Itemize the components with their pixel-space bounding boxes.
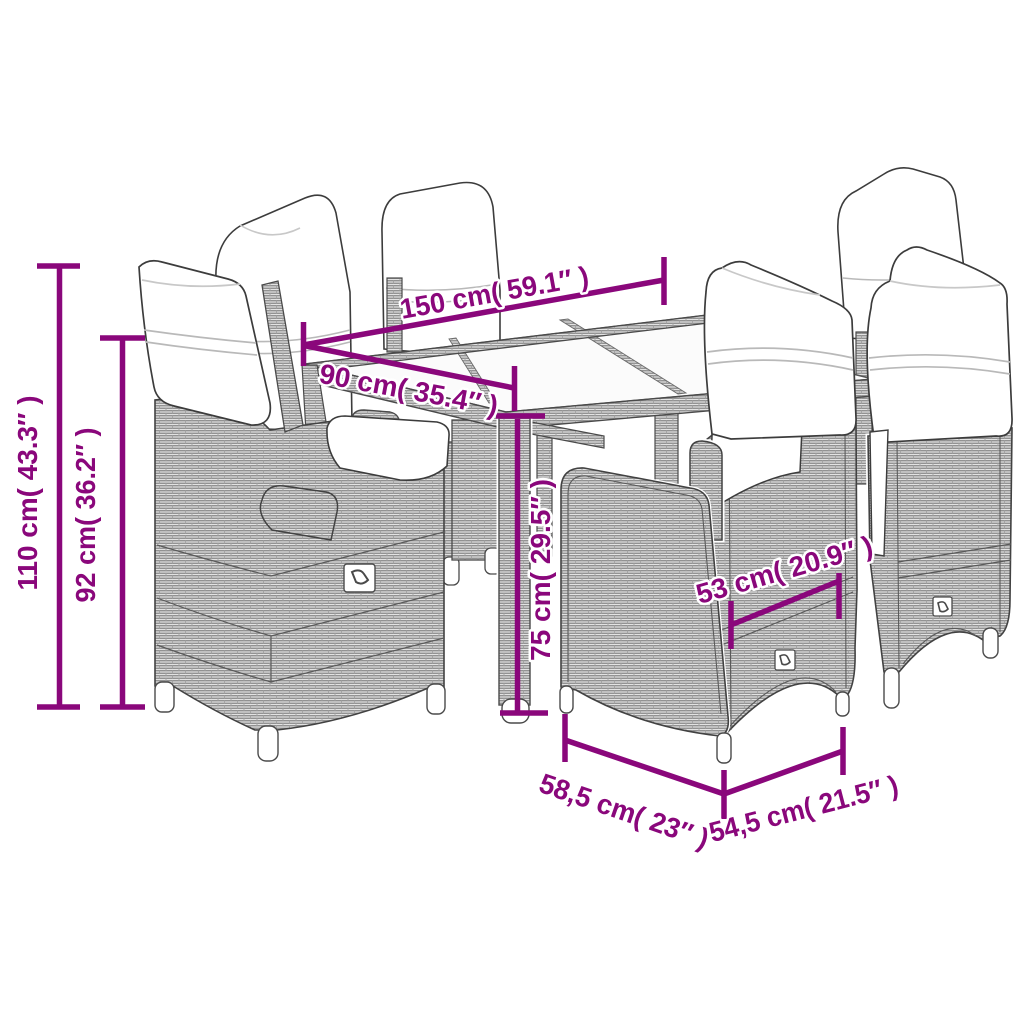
- svg-text:110 cm( 43.3″ ): 110 cm( 43.3″ ): [12, 396, 43, 591]
- svg-text:75 cm( 29.5″ ): 75 cm( 29.5″ ): [525, 479, 556, 661]
- svg-text:92 cm( 36.2″ ): 92 cm( 36.2″ ): [70, 428, 101, 603]
